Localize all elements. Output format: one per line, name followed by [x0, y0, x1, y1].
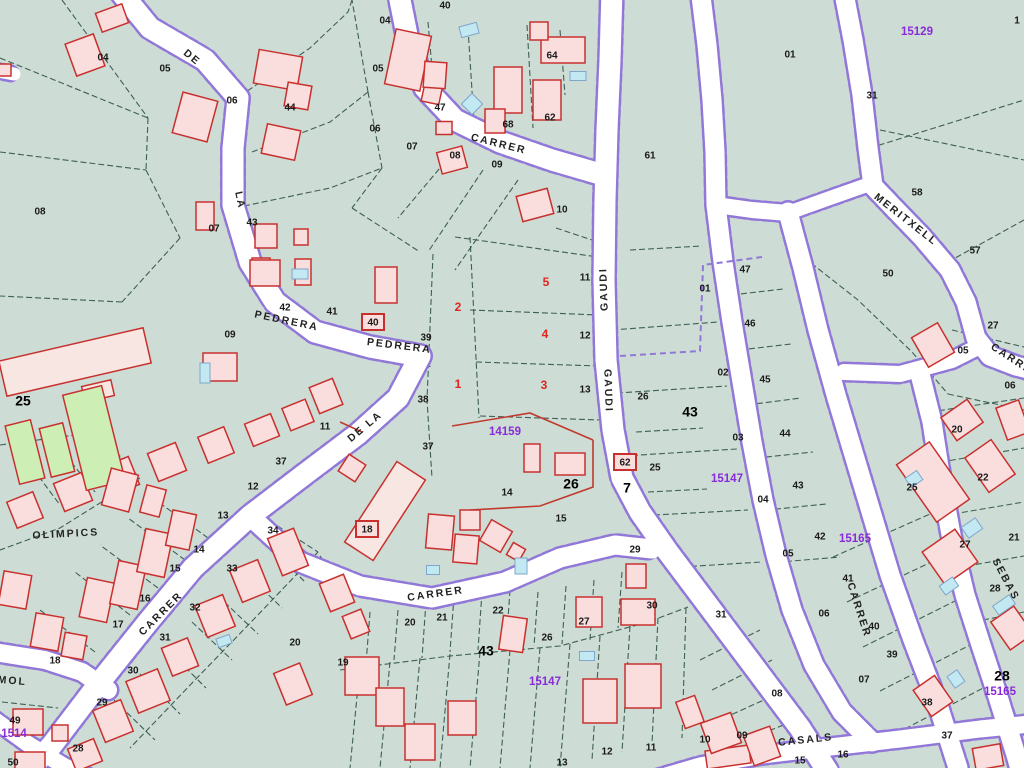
parcel-number: 25 — [906, 483, 918, 494]
parcel-number: 31 — [159, 633, 171, 644]
parcel-number: 20 — [289, 638, 301, 649]
parcel-number: 27 — [578, 617, 590, 628]
building — [405, 724, 435, 760]
pool — [580, 652, 595, 661]
parcel-number: 28 — [72, 744, 84, 755]
parcel-number: 16 — [837, 750, 849, 761]
parcel-number: 17 — [112, 620, 124, 631]
building — [626, 564, 646, 588]
boxed-parcel-number: 18 — [361, 525, 373, 536]
parcel-number: 33 — [226, 564, 238, 575]
parcel-number: 09 — [224, 330, 236, 341]
parcel-number: 44 — [284, 103, 296, 114]
parcel-number: 50 — [882, 269, 894, 280]
parcel-number: 06 — [226, 96, 238, 107]
parcel-number: 12 — [579, 331, 591, 342]
parcel-number: 41 — [842, 574, 854, 585]
building — [494, 67, 522, 113]
building — [460, 510, 480, 530]
building — [625, 664, 661, 708]
building — [453, 534, 479, 564]
parcel-number: 64 — [546, 51, 558, 62]
sector-reference-number: 14159 — [489, 426, 521, 438]
parcel-number: 20 — [404, 618, 416, 629]
building — [255, 224, 277, 248]
parcel-number: 10 — [699, 735, 711, 746]
parcel-number: 21 — [436, 613, 448, 624]
building — [250, 260, 280, 286]
parcel-number: 29 — [96, 698, 108, 709]
parcel-number: 62 — [544, 113, 556, 124]
pool — [292, 269, 308, 279]
parcel-number: 05 — [782, 549, 794, 560]
sector-reference-number: 15147 — [529, 676, 561, 688]
boxed-parcel-number: 62 — [619, 458, 631, 469]
parcel-number: 37 — [941, 731, 953, 742]
parcel-number: 1 — [1014, 16, 1020, 27]
parcel-number: 57 — [969, 246, 981, 257]
parcel-number: 13 — [579, 385, 591, 396]
parcel-number: 43 — [792, 481, 804, 492]
parcel-number: 49 — [9, 716, 21, 727]
parcel-number: 42 — [279, 303, 291, 314]
parcel-number: 38 — [921, 698, 933, 709]
parcel-number: 22 — [492, 606, 504, 617]
parcel-number: 40 — [868, 622, 880, 633]
parcel-number: 08 — [34, 207, 46, 218]
parcel-number: 06 — [1004, 381, 1016, 392]
parcel-number: 15 — [169, 564, 181, 575]
parcel-number: 07 — [858, 675, 870, 686]
parcel-number: 11 — [320, 422, 331, 433]
building — [972, 744, 1003, 768]
building — [61, 632, 87, 659]
parcel-number: 09 — [491, 160, 503, 171]
parcel-number: 01 — [699, 284, 711, 295]
parcel-number: 38 — [417, 395, 429, 406]
street-name-label: MOL — [0, 674, 27, 689]
parcel-number: 04 — [757, 495, 769, 506]
parcel-number: 16 — [139, 594, 151, 605]
building — [345, 657, 379, 695]
parcel-number: 37 — [275, 457, 287, 468]
parcel-number: 20 — [951, 425, 963, 436]
parcel-number: 08 — [449, 151, 461, 162]
zone-number: 1 — [455, 377, 462, 391]
building — [294, 229, 308, 245]
sector-reference-number: 15165 — [839, 533, 872, 545]
building — [423, 61, 447, 88]
parcel-number: 30 — [646, 601, 658, 612]
parcel-number: 22 — [977, 473, 989, 484]
building — [261, 124, 300, 160]
parcel-number: 27 — [987, 321, 999, 332]
parcel-number: 26 — [541, 633, 553, 644]
building — [555, 453, 585, 475]
parcel-number: 06 — [369, 124, 381, 135]
parcel-number: 46 — [744, 319, 756, 330]
parcel-number: 61 — [644, 151, 656, 162]
parcel-number: 02 — [717, 368, 729, 379]
parcel-number: 21 — [1008, 533, 1020, 544]
pool — [515, 558, 527, 574]
street-road-connector-a[interactable] — [716, 205, 788, 213]
parcel-number: 11 — [580, 273, 591, 284]
parcel-number: 06 — [818, 609, 830, 620]
parcel-number: 40 — [439, 1, 451, 12]
zone-number: 3 — [541, 378, 548, 392]
zone-number: 2 — [455, 300, 462, 314]
parcel-number: 12 — [247, 482, 259, 493]
sector-reference-number: 15165 — [984, 686, 1017, 698]
parcel-number: 31 — [715, 610, 727, 621]
parcel-number: 13 — [217, 511, 229, 522]
cadastral-map-viewport[interactable]: 401862DELAPEDRERAPEDRERADE LACARRERCARRE… — [0, 0, 1024, 768]
parcel-number: 11 — [646, 743, 657, 754]
parcel-number: 29 — [629, 545, 641, 556]
building — [15, 752, 45, 768]
parcel-number: 68 — [502, 120, 514, 131]
parcel-number: 12 — [601, 747, 613, 758]
parcel-number: 28 — [989, 584, 1001, 595]
sector-reference-number: 15129 — [901, 26, 933, 38]
pool — [200, 363, 210, 383]
parcel-number: 47 — [434, 103, 446, 114]
parcel-number: 41 — [326, 307, 338, 318]
parcel-number: 58 — [911, 188, 923, 199]
cadastral-map-canvas[interactable]: 401862DELAPEDRERAPEDRERADE LACARRERCARRE… — [0, 0, 1024, 768]
parcel-number: 14 — [193, 545, 205, 556]
parcel-number: 39 — [420, 333, 432, 344]
building — [448, 701, 476, 735]
parcel-number: 30 — [127, 666, 139, 677]
parcel-number: 43 — [246, 218, 258, 229]
parcel-number: 07 — [208, 224, 220, 235]
parcel-number: 14 — [501, 488, 513, 499]
parcel-number: 47 — [739, 265, 751, 276]
building — [524, 444, 540, 472]
parcel-number: 32 — [189, 603, 201, 614]
parcel-number: 26 — [637, 392, 649, 403]
building — [530, 22, 548, 40]
parcel-number: 04 — [379, 16, 391, 27]
building — [376, 688, 404, 726]
zone-number: 4 — [542, 327, 549, 341]
parcel-number: 05 — [372, 64, 384, 75]
building — [0, 64, 11, 76]
pool — [570, 72, 586, 81]
parcel-number: 25 — [649, 463, 661, 474]
parcel-number: 10 — [556, 205, 568, 216]
block-number: 7 — [623, 480, 631, 496]
parcel-number: 45 — [759, 375, 771, 386]
parcel-number: 27 — [959, 540, 971, 551]
parcel-number: 44 — [779, 429, 791, 440]
block-number: 28 — [994, 668, 1010, 684]
sector-reference-number: 1514 — [1, 728, 27, 740]
building — [583, 679, 617, 723]
parcel-number: 15 — [794, 756, 806, 767]
parcel-number: 31 — [866, 91, 878, 102]
building — [0, 571, 32, 609]
block-number: 26 — [563, 476, 579, 492]
parcel-number: 42 — [814, 532, 826, 543]
building — [375, 267, 397, 303]
parcel-number: 05 — [159, 64, 171, 75]
zone-number: 5 — [543, 275, 550, 289]
pool — [427, 566, 440, 575]
parcel-number: 07 — [406, 142, 418, 153]
block-number: 25 — [15, 393, 31, 409]
sector-reference-number: 15147 — [711, 473, 743, 485]
parcel-number: 19 — [337, 658, 349, 669]
parcel-number: 34 — [267, 526, 279, 537]
block-number: 43 — [682, 404, 698, 420]
building — [52, 725, 68, 741]
street-name-label: GAUDI — [601, 369, 615, 413]
parcel-number: 03 — [732, 433, 744, 444]
building — [499, 615, 527, 652]
parcel-number: 13 — [556, 758, 568, 768]
street-name-label: GAUDI — [597, 267, 611, 311]
parcel-number: 15 — [555, 514, 567, 525]
block-number: 43 — [478, 643, 494, 659]
building — [426, 514, 455, 550]
building — [30, 613, 63, 651]
parcel-number: 04 — [97, 53, 109, 64]
parcel-number: 39 — [886, 650, 898, 661]
parcel-number: 01 — [784, 50, 796, 61]
parcel-number: 09 — [736, 731, 748, 742]
parcel-number: 18 — [49, 656, 61, 667]
parcel-number: 37 — [422, 442, 434, 453]
boxed-parcel-number: 40 — [367, 318, 379, 329]
parcel-number: 08 — [771, 689, 783, 700]
parcel-number: 50 — [7, 758, 19, 768]
parcel-number: 05 — [957, 346, 969, 357]
building — [436, 122, 452, 135]
